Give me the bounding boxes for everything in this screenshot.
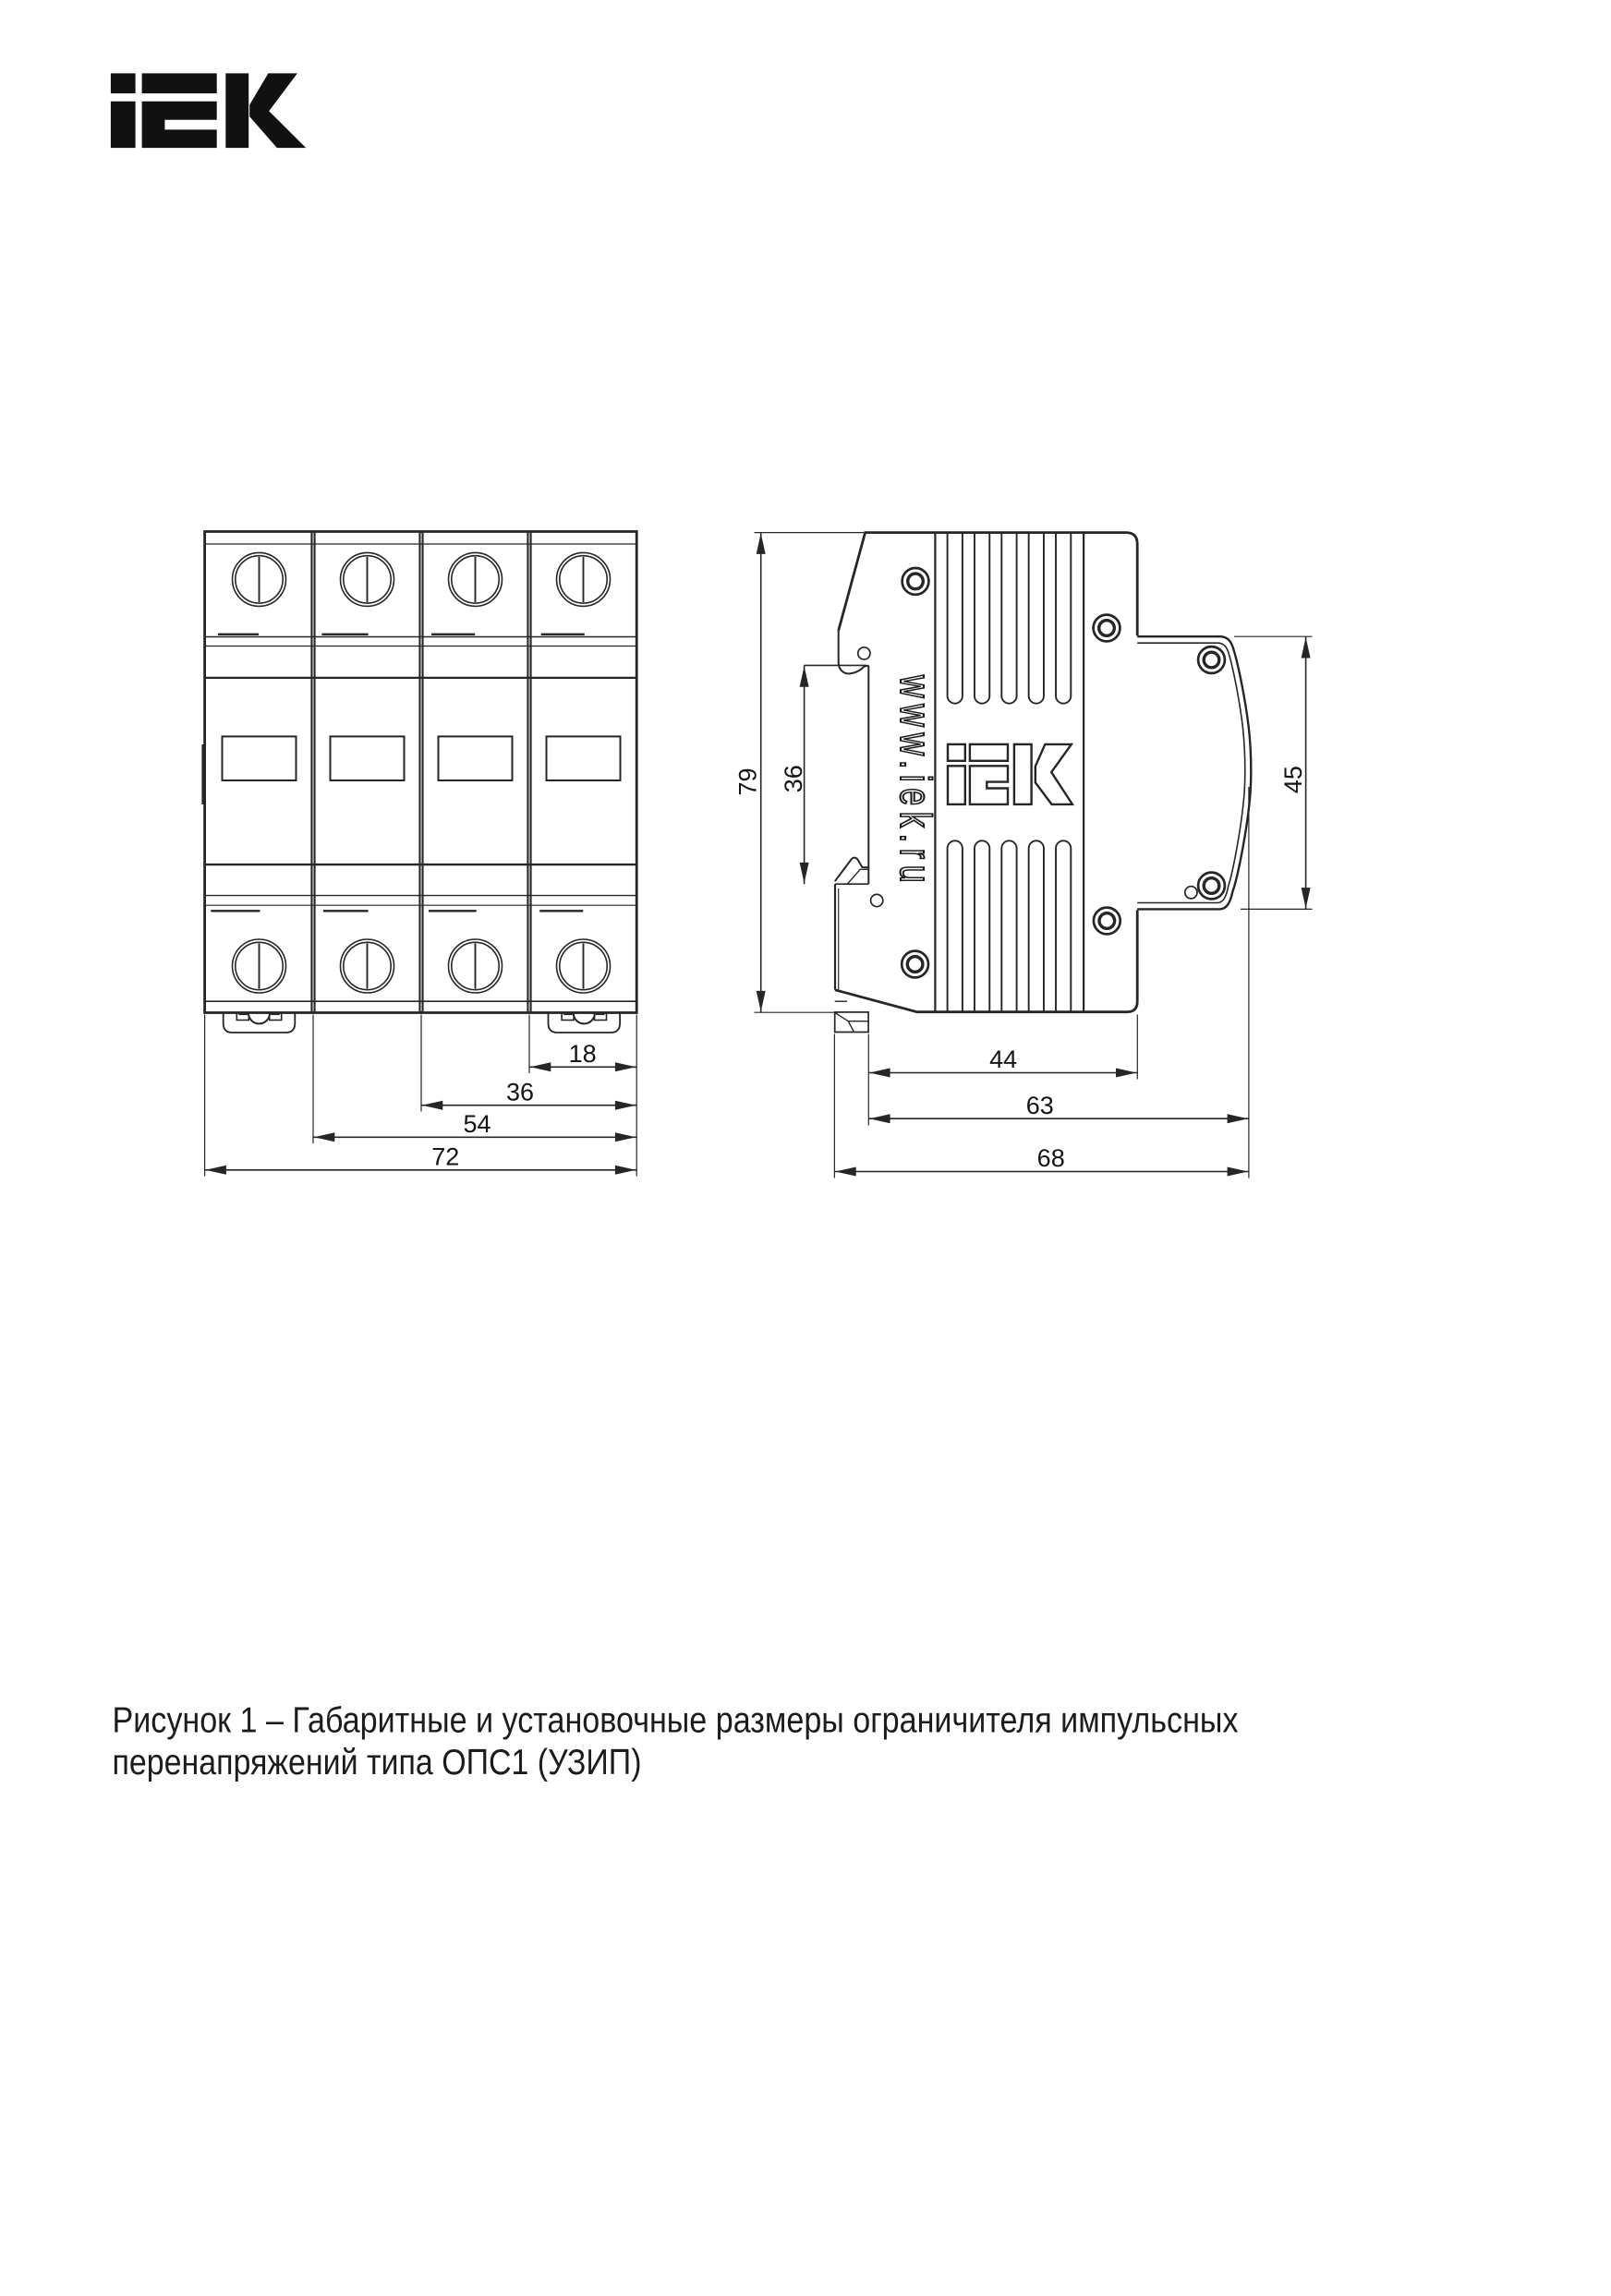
svg-text:54: 54 xyxy=(463,1110,491,1138)
svg-text:68: 68 xyxy=(1037,1144,1065,1172)
svg-text:79: 79 xyxy=(734,767,762,795)
svg-text:www.iek.ru: www.iek.ru xyxy=(891,674,940,888)
svg-text:44: 44 xyxy=(989,1045,1017,1073)
svg-text:63: 63 xyxy=(1026,1092,1054,1119)
svg-text:18: 18 xyxy=(569,1040,597,1068)
svg-text:72: 72 xyxy=(431,1143,459,1171)
svg-text:45: 45 xyxy=(1279,766,1307,793)
svg-text:36: 36 xyxy=(780,765,807,792)
svg-text:36: 36 xyxy=(506,1078,534,1106)
svg-text:Рисунок 1 – Габаритные и устан: Рисунок 1 – Габаритные и установочные ра… xyxy=(113,1701,1239,1741)
svg-text:перенапряжений типа ОПС1 (УЗИП: перенапряжений типа ОПС1 (УЗИП) xyxy=(113,1743,642,1782)
